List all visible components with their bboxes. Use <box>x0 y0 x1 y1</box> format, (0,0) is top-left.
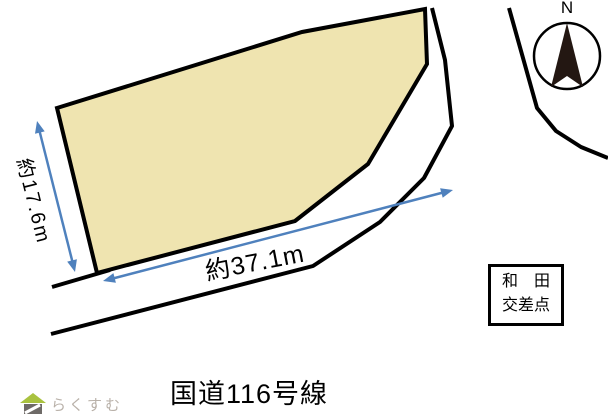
intersection-name-line1: 和 田 <box>491 270 561 294</box>
land-plot-diagram: 約17.6m 約37.1m 国道116号線 N 和 田 交差点 らくすむ <box>0 0 608 418</box>
compass-north-label: N <box>558 0 576 18</box>
house-icon <box>20 393 46 415</box>
intersection-name-line2: 交差点 <box>491 294 561 318</box>
arrowhead-up-icon <box>35 121 45 134</box>
compass <box>534 23 600 89</box>
diagram-canvas <box>0 0 608 418</box>
land-parcel-shape <box>57 9 427 273</box>
logo-text: らくすむ <box>51 394 123 415</box>
arrowhead-down-icon <box>67 259 77 272</box>
arrowhead-right-icon <box>440 188 453 198</box>
arrowhead-left-icon <box>103 273 116 283</box>
intersection-label-box: 和 田 交差点 <box>488 264 564 326</box>
rakusumu-logo: らくすむ <box>20 392 123 416</box>
road-name-label: 国道116号線 <box>170 372 328 411</box>
